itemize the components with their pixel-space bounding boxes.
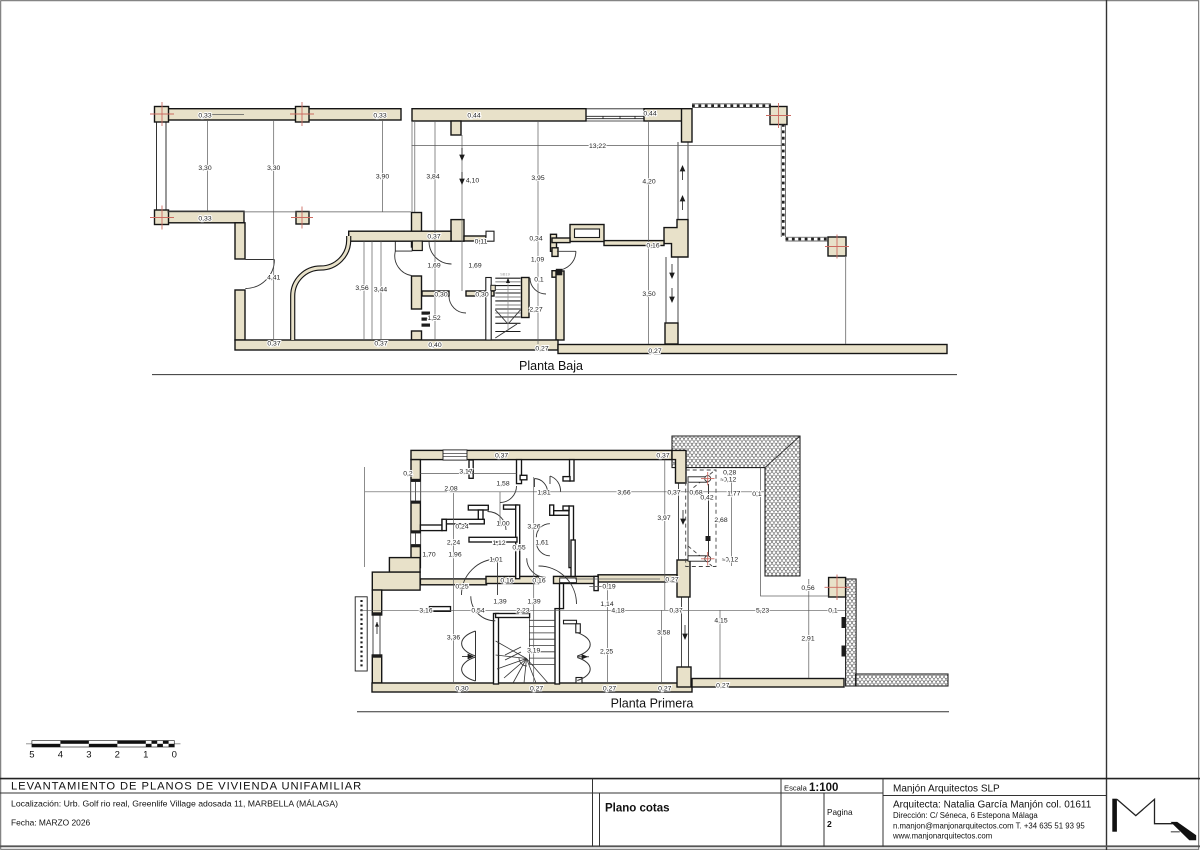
svg-text:1,77: 1,77 [727,491,740,498]
svg-text:1,69: 1,69 [427,263,440,270]
svg-text:LEVANTAMIENTO DE PLANOS DE VIV: LEVANTAMIENTO DE PLANOS DE VIVIENDA UNIF… [11,781,362,793]
svg-text:3,19: 3,19 [527,648,540,655]
svg-text:0,37: 0,37 [667,490,680,497]
svg-text:SB19: SB19 [500,272,511,277]
svg-text:3,50: 3,50 [642,291,655,298]
svg-text:0,44: 0,44 [467,113,480,120]
svg-text:Planta Primera: Planta Primera [611,697,694,711]
svg-text:n.manjon@manjonarquitectos.com: n.manjon@manjonarquitectos.com T. +34 63… [893,821,1085,830]
svg-text:0,1: 0,1 [752,491,762,498]
svg-text:0,16: 0,16 [646,243,659,250]
svg-text:3,30: 3,30 [267,165,280,172]
svg-text:0,27: 0,27 [665,577,678,584]
svg-text:0,54: 0,54 [471,608,484,615]
svg-text:0,27: 0,27 [716,683,729,690]
svg-text:0,30: 0,30 [455,686,468,693]
svg-text:1,81: 1,81 [537,490,550,497]
svg-text:0,37: 0,37 [656,453,669,460]
svg-text:0,37: 0,37 [669,608,682,615]
svg-text:0,33: 0,33 [373,113,386,120]
svg-text:Planta Baja: Planta Baja [519,359,583,373]
svg-text:0,55: 0,55 [512,545,525,552]
svg-text:4,15: 4,15 [714,618,727,625]
svg-text:0,37: 0,37 [267,341,280,348]
svg-text:3,56: 3,56 [355,285,368,292]
svg-text:Fecha: MARZO 2026: Fecha: MARZO 2026 [11,818,90,828]
svg-text:0,1: 0,1 [828,608,838,615]
svg-text:0,27: 0,27 [648,348,661,355]
svg-text:Plano cotas: Plano cotas [605,803,670,815]
svg-text:0,25: 0,25 [455,584,468,591]
svg-text:3,36: 3,36 [447,635,460,642]
svg-text:3,44: 3,44 [374,287,387,294]
svg-text:5,23: 5,23 [756,608,769,615]
svg-text:0,11: 0,11 [475,239,488,246]
svg-text:1: 1 [143,750,148,761]
svg-text:1,52: 1,52 [427,315,440,322]
svg-text:2,08: 2,08 [444,486,457,493]
svg-text:5: 5 [29,750,34,761]
svg-text:0,33: 0,33 [198,216,211,223]
svg-text:0,24: 0,24 [455,524,468,531]
svg-text:4: 4 [58,750,63,761]
svg-text:3,95: 3,95 [531,175,544,182]
svg-text:0,37: 0,37 [427,234,440,241]
svg-text:0,30: 0,30 [475,292,488,299]
svg-text:4,20: 4,20 [642,179,655,186]
svg-text:0,44: 0,44 [643,111,656,118]
svg-text:3: 3 [86,750,91,761]
svg-text:0,16: 0,16 [500,578,513,585]
svg-text:3,97: 3,97 [657,515,670,522]
svg-text:1,39: 1,39 [493,599,506,606]
svg-text:2,23: 2,23 [516,608,529,615]
svg-text:0,30: 0,30 [434,292,447,299]
svg-text:0,42: 0,42 [700,495,713,502]
svg-text:3,26: 3,26 [527,524,540,531]
svg-text:1,00: 1,00 [496,521,509,528]
svg-text:0,12: 0,12 [725,557,738,564]
svg-text:1,09: 1,09 [531,257,544,264]
svg-text:Localización: Urb. Golf rio r: Localización: Urb. Golf rio real, Greenl… [11,799,338,809]
svg-text:1,70: 1,70 [422,552,435,559]
svg-text:3,30: 3,30 [198,165,211,172]
svg-text:0,37: 0,37 [374,341,387,348]
svg-text:0,12: 0,12 [723,477,736,484]
svg-text:Manjón Arquitectos SLP: Manjón Arquitectos SLP [893,784,1000,795]
svg-text:4,10: 4,10 [466,178,479,185]
svg-text:1:100: 1:100 [809,782,838,794]
svg-text:2: 2 [827,819,832,829]
svg-text:1,96: 1,96 [448,552,461,559]
svg-text:0,2: 0,2 [403,471,413,478]
svg-text:0,40: 0,40 [428,342,441,349]
svg-text:0,1: 0,1 [534,277,544,284]
svg-text:0,28: 0,28 [723,470,736,477]
svg-text:1,39: 1,39 [527,599,540,606]
svg-text:0,27: 0,27 [658,686,671,693]
svg-text:1,61: 1,61 [535,540,548,547]
svg-text:3,90: 3,90 [376,174,389,181]
svg-text:3,66: 3,66 [617,490,630,497]
svg-text:Dirección: C/ Séneca, 6 Estepo: Dirección: C/ Séneca, 6 Estepona Málaga [893,811,1038,820]
svg-text:2,68: 2,68 [714,517,727,524]
svg-text:1,12: 1,12 [492,540,505,547]
svg-text:0,27: 0,27 [530,686,543,693]
svg-text:4,41: 4,41 [267,275,280,282]
svg-text:3,58: 3,58 [657,630,670,637]
svg-text:Escala: Escala [784,784,808,793]
svg-text:0,56: 0,56 [801,585,814,592]
svg-text:0,33: 0,33 [198,113,211,120]
svg-text:3,16: 3,16 [419,608,432,615]
svg-text:4,18: 4,18 [611,608,624,615]
svg-text:0,19: 0,19 [602,584,615,591]
svg-text:3,84: 3,84 [426,174,439,181]
svg-text:13,22: 13,22 [589,143,606,150]
svg-text:Arquitecta: Natalia García Man: Arquitecta: Natalia García Manjón col. 0… [893,800,1092,811]
svg-text:Pagina: Pagina [827,808,853,817]
svg-text:2,25: 2,25 [600,649,613,656]
svg-text:0,37: 0,37 [495,453,508,460]
svg-text:1,69: 1,69 [468,263,481,270]
svg-text:2,24: 2,24 [447,540,460,547]
svg-text:2,27: 2,27 [529,307,542,314]
svg-text:0,27: 0,27 [535,346,548,353]
svg-text:1,58: 1,58 [496,481,509,488]
svg-text:0,27: 0,27 [603,686,616,693]
svg-text:2: 2 [115,750,120,761]
svg-text:3,17: 3,17 [459,469,472,476]
svg-text:2,91: 2,91 [801,636,814,643]
svg-text:0: 0 [172,750,177,761]
svg-text:www.manjonarquitectos.com: www.manjonarquitectos.com [892,832,992,841]
svg-text:1,01: 1,01 [489,557,502,564]
svg-text:0,34: 0,34 [529,236,542,243]
svg-text:0,16: 0,16 [532,578,545,585]
